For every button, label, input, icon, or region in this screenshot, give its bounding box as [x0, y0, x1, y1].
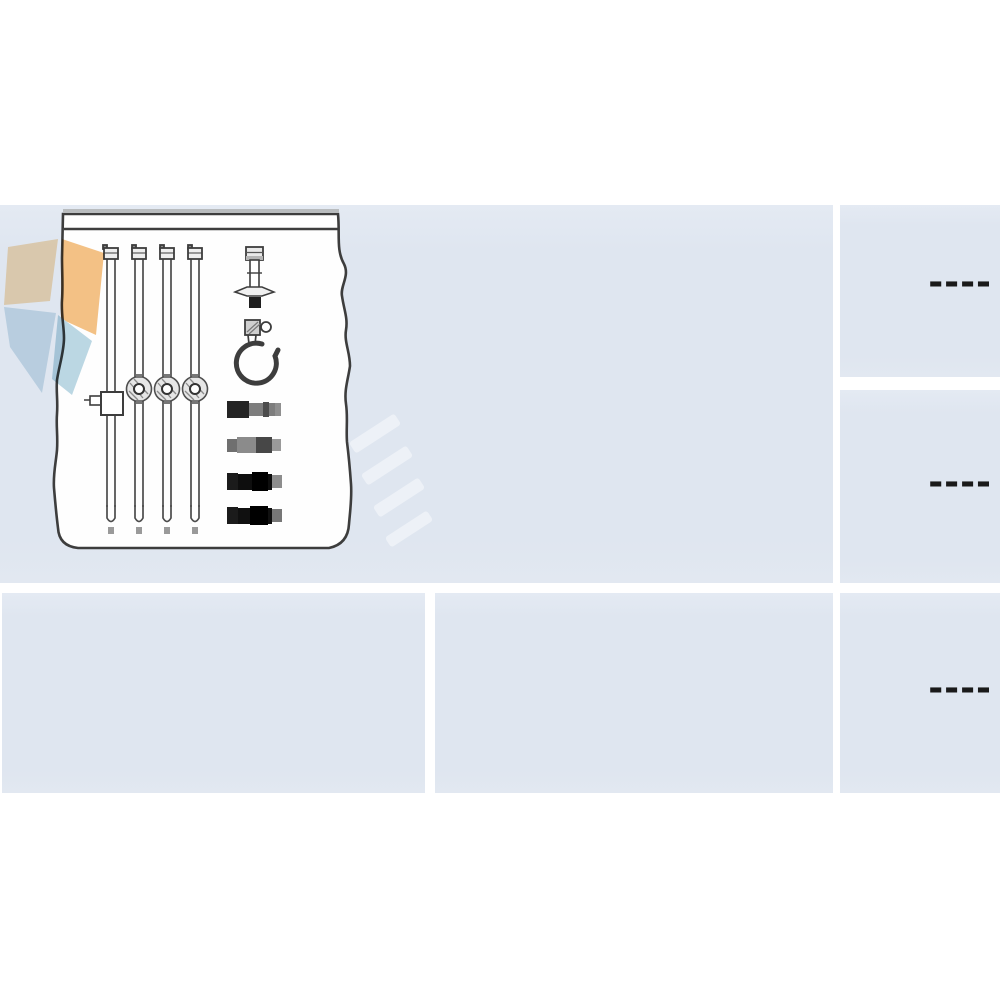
logo-facet-orange-light	[4, 239, 58, 305]
catalog-page: ---- ---- ----	[0, 0, 1000, 1000]
cable-grommets	[127, 374, 208, 404]
placeholder-value-3: ----	[928, 671, 992, 707]
placeholder-value-1: ----	[928, 265, 992, 301]
placeholder-value-2: ----	[928, 465, 992, 501]
terminal-sleeve-icon	[227, 401, 281, 418]
bottom-middle-cell[interactable]	[435, 593, 833, 793]
right-row-2[interactable]: ----	[840, 390, 1000, 583]
logo-facet-blue-light	[4, 307, 56, 393]
terminal-sleeve-icon	[227, 437, 281, 453]
bottom-left-cell[interactable]	[2, 593, 425, 793]
logo-facet-orange	[61, 239, 104, 335]
right-row-1[interactable]: ----	[840, 205, 1000, 377]
brand-diamond-logo	[0, 235, 115, 400]
right-row-3[interactable]: ----	[840, 593, 1000, 793]
